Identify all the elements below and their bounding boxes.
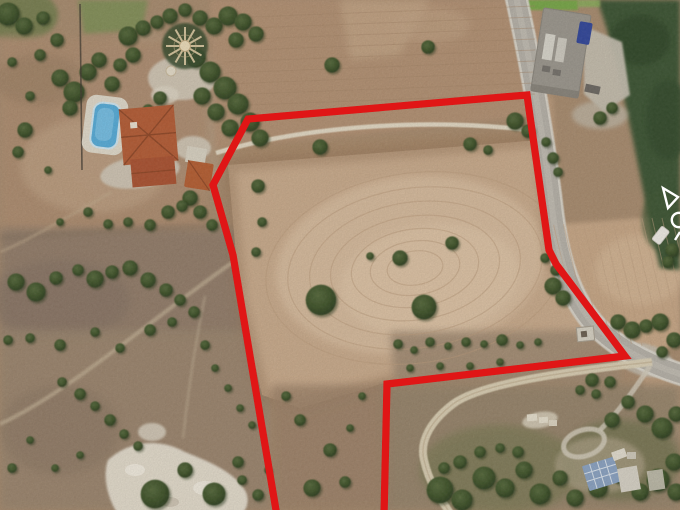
satellite-image-container	[0, 0, 680, 510]
noise-overlay	[0, 0, 680, 510]
satellite-image	[0, 0, 680, 510]
